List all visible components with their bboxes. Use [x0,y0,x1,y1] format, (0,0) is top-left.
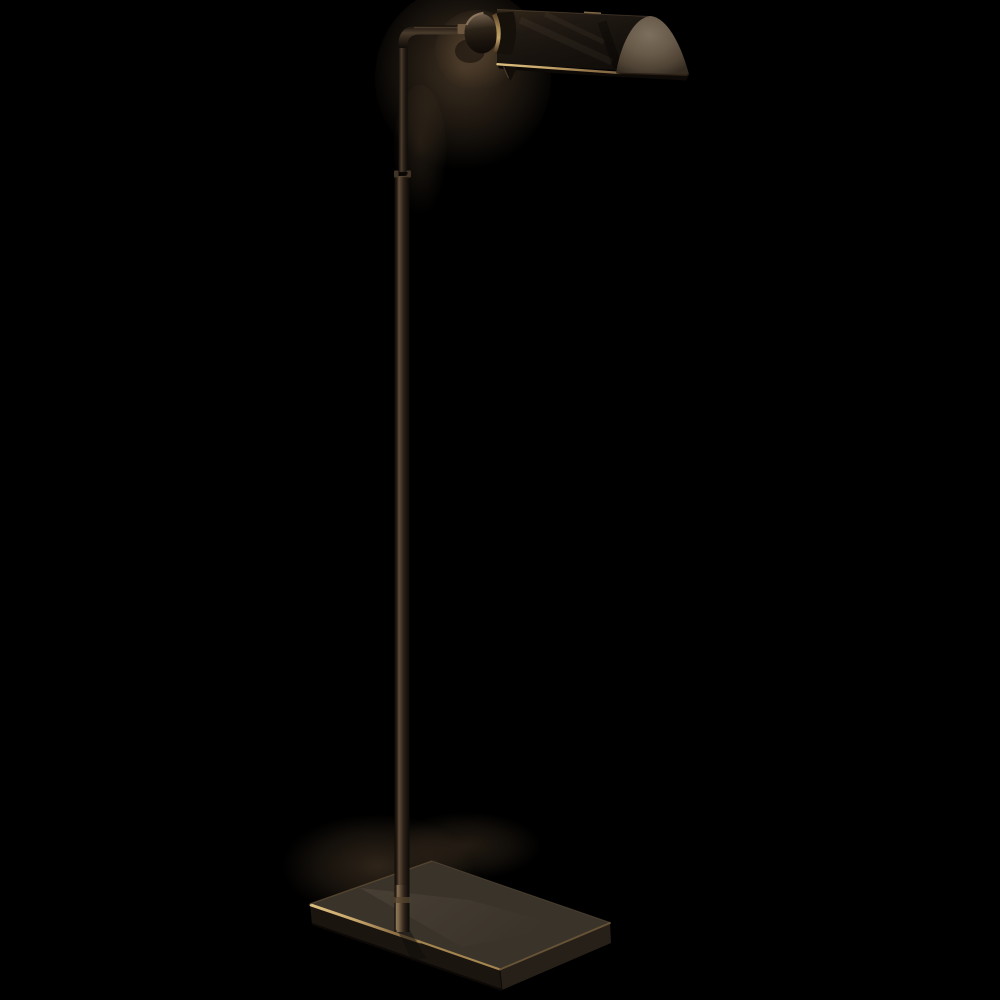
stem-joint-gap [399,172,408,175]
joint-thumbscrew-left [394,171,399,178]
lower-stem [394,176,411,932]
shade-top-edge-glint [584,12,601,13]
lower-stem-tube [395,176,410,932]
upper-stem-rod [399,38,408,173]
stem-base-collar [394,897,411,903]
product-photo: Bronze pharmacy floor lamp [0,0,1000,1000]
